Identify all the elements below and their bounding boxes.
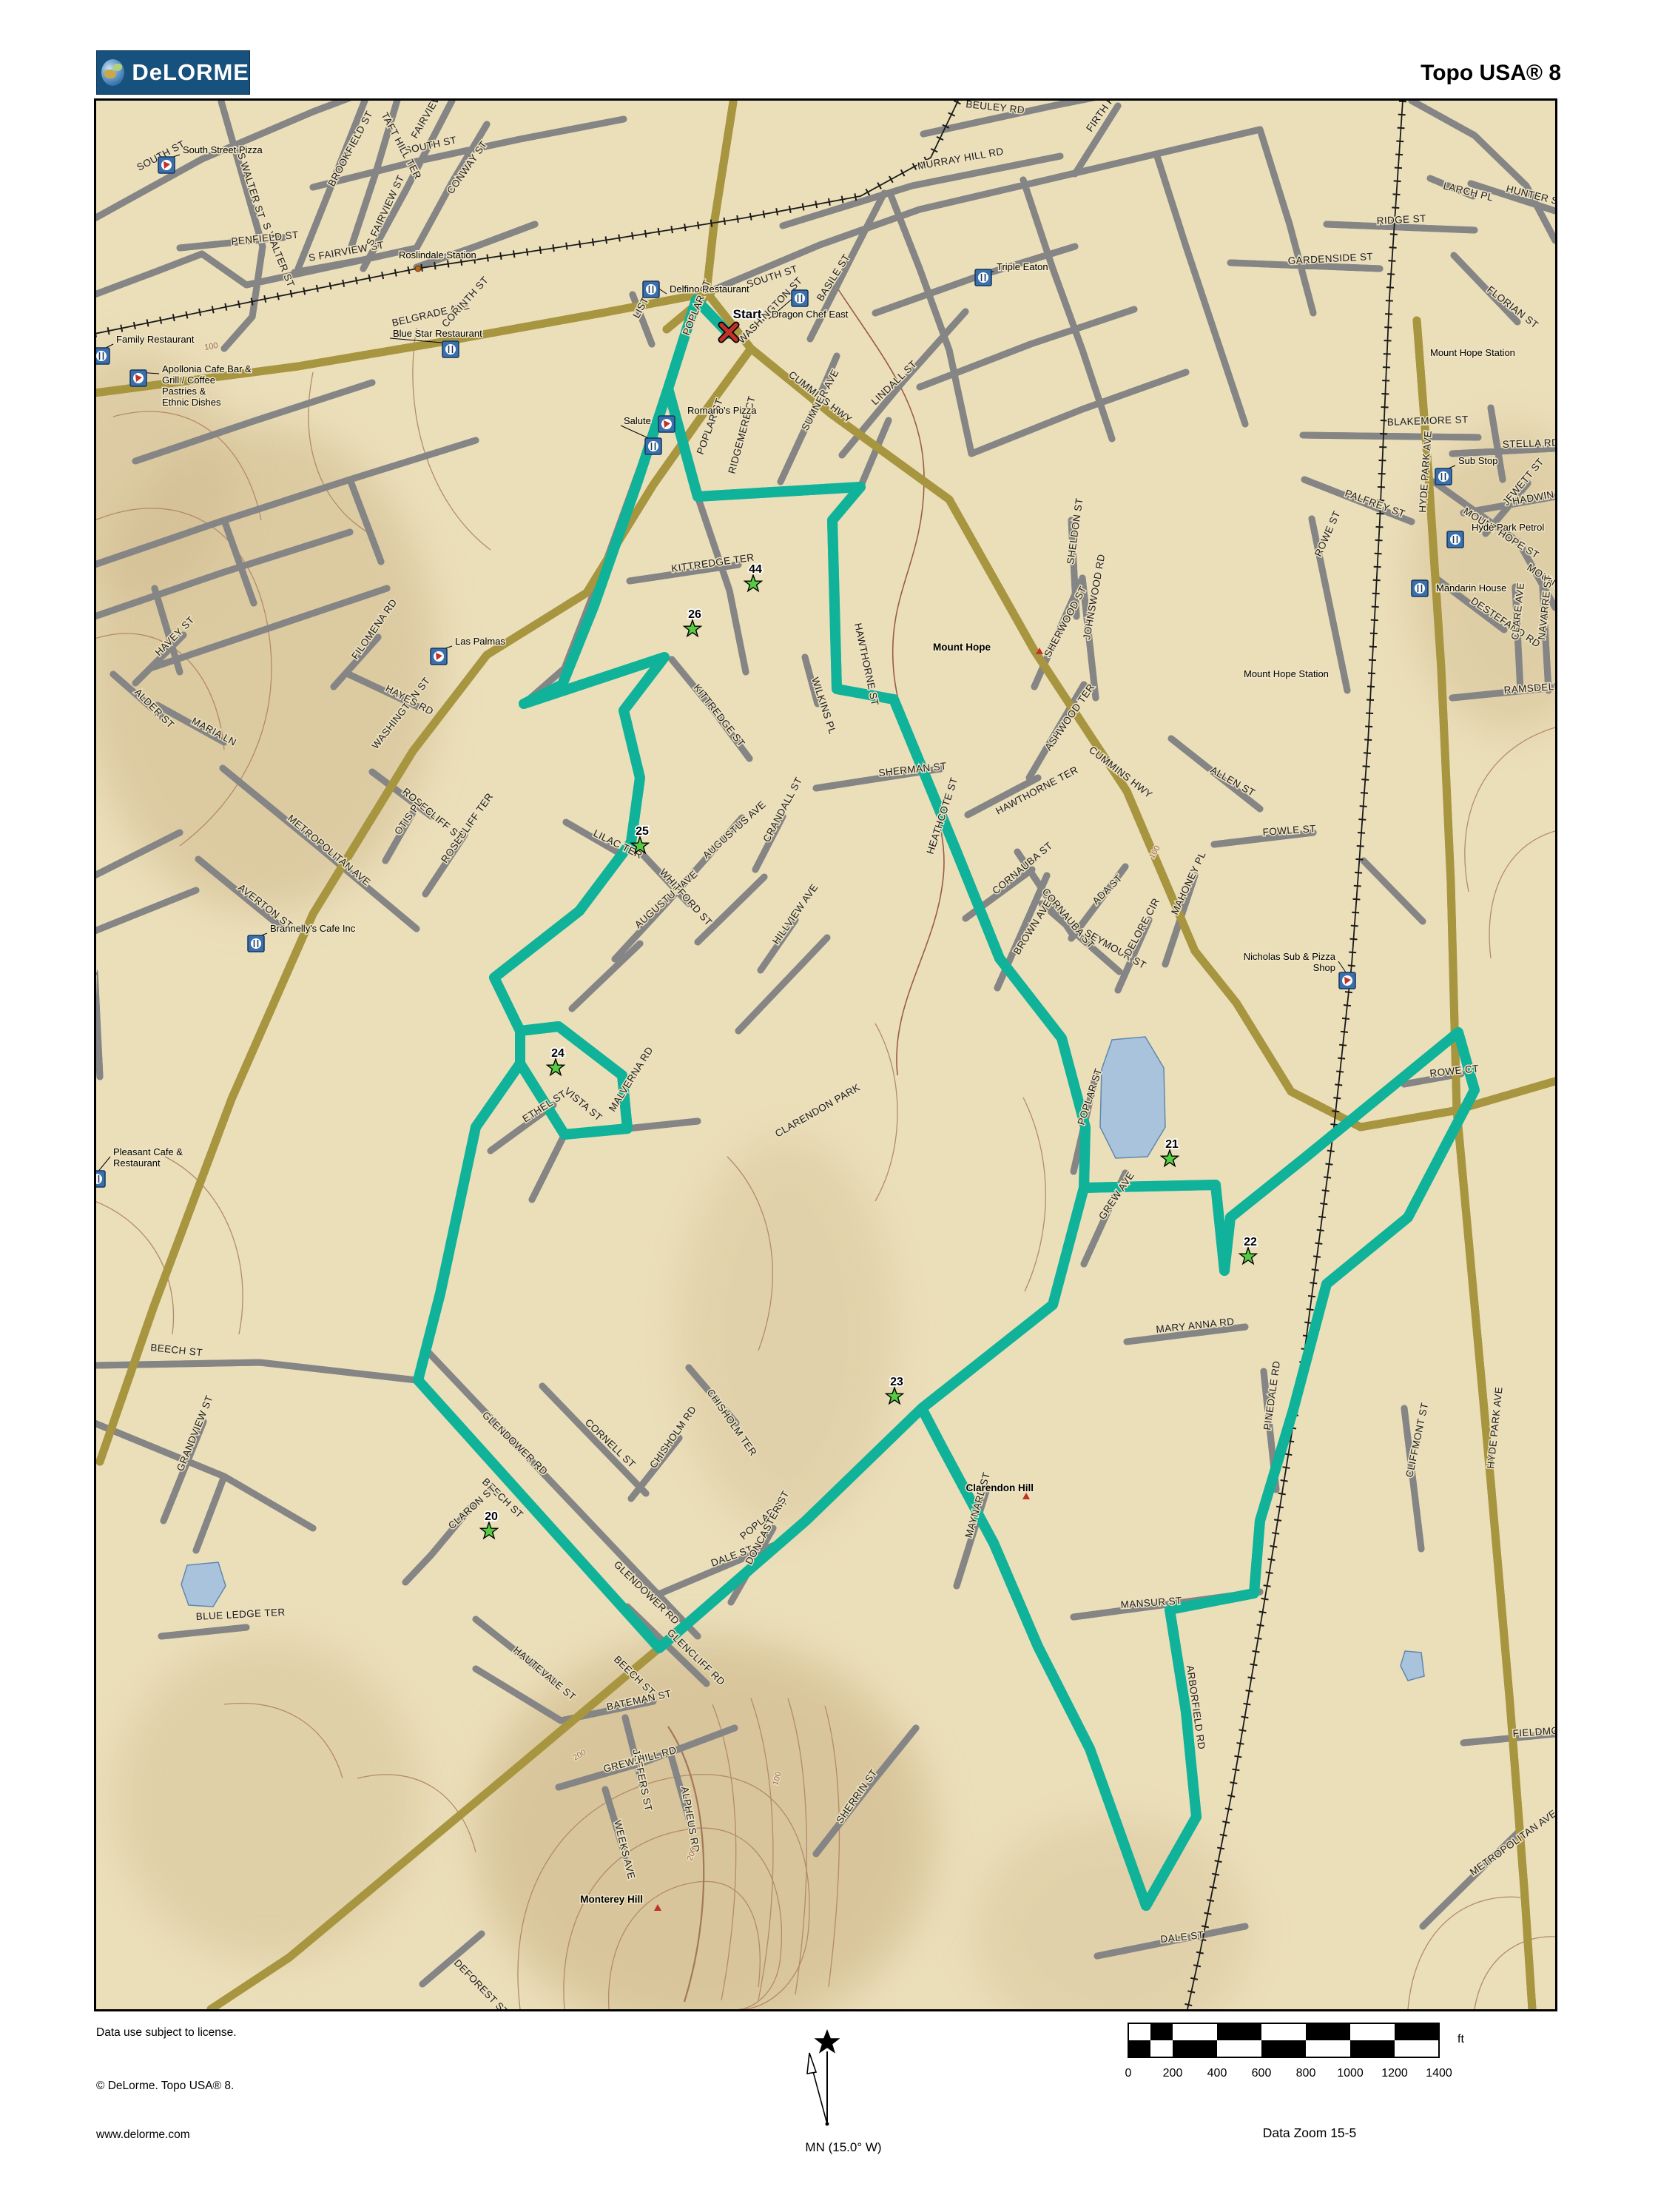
summit-triangle-icon	[1022, 1493, 1030, 1499]
street-name-label: CORNELL ST	[583, 1416, 638, 1470]
street-name-label: STELLA RD	[1503, 437, 1555, 450]
waypoint-star-icon[interactable]	[684, 620, 701, 636]
contour-elevation-label: 100	[203, 341, 218, 352]
poi-label: Restaurant	[113, 1157, 161, 1169]
street-name-label: SUMNER AVE	[799, 368, 840, 433]
poi-icon-plate	[445, 344, 456, 354]
waypoint-star-icon[interactable]	[547, 1059, 565, 1075]
website-link[interactable]: www.delorme.com	[96, 2128, 190, 2142]
license-line-1: Data use subject to license.	[96, 2026, 237, 2040]
street-name-label: SHERWOOD ST	[1042, 585, 1088, 659]
scale-tick-label: 1400	[1426, 2067, 1452, 2080]
waypoint-26[interactable]: 26	[684, 608, 701, 636]
poi-icon-plate	[251, 938, 261, 949]
poi-label: Sub Stop	[1458, 455, 1498, 466]
street-name-label: BLAKEMORE ST	[1387, 414, 1469, 428]
scale-tick-label: 1000	[1337, 2067, 1364, 2080]
waypoint-44[interactable]: 44	[745, 563, 762, 591]
street-name-label: DEFOREST ST	[452, 1957, 510, 2009]
scale-cell	[1306, 2023, 1350, 2040]
street-name-label: PALFREY ST	[1344, 488, 1406, 520]
poi-icon-plate	[96, 351, 107, 361]
poi-label: Shop	[1313, 962, 1335, 973]
poi-icon-plate	[1450, 534, 1460, 545]
street-name-label: AUGUSTUS AVE	[701, 799, 768, 861]
street-name-label: METROPOLITAN AVE	[1468, 1807, 1555, 1877]
delorme-logo: DeLORME	[96, 50, 250, 95]
street-name-label: FLORIAN ST	[1485, 284, 1540, 331]
street-name-label: CORINTH ST	[439, 275, 491, 329]
poi-label: Nicholas Sub & Pizza	[1244, 951, 1336, 962]
street-name-label: BEULEY RD	[966, 101, 1025, 115]
station: Mount Hope Station	[1430, 347, 1515, 358]
waypoint-number: 44	[749, 563, 762, 576]
app-title: Topo USA® 8	[1421, 61, 1561, 86]
station-dot-icon	[415, 266, 421, 272]
poi-label: South Street Pizza	[183, 144, 263, 155]
street-name-label: RIDGE ST	[1376, 213, 1426, 226]
scale-tick-label: 0	[1125, 2067, 1132, 2080]
scale-cell	[1350, 2040, 1395, 2057]
globe-icon	[101, 59, 124, 86]
waypoint-number: 26	[688, 608, 701, 621]
magnetic-declination-label: MN (15.0° W)	[769, 2140, 917, 2155]
poi-label: Salute	[624, 415, 651, 426]
waypoint-number: 23	[890, 1376, 903, 1388]
street-name-label: MALVERNA RD	[607, 1045, 656, 1114]
summit-label: Mount Hope	[933, 642, 991, 653]
poi-icon-plate	[646, 284, 656, 295]
street-name-label: CRANDALL ST	[761, 776, 804, 844]
scale-cell	[1217, 2023, 1261, 2040]
scale-cell	[1150, 2023, 1173, 2040]
poi-icon-plate	[795, 293, 805, 303]
poi-label: Ethnic Dishes	[162, 397, 221, 408]
poi[interactable]: Triple Eaton	[975, 261, 1048, 286]
scale-cell	[1128, 2040, 1150, 2057]
start-label: Start	[733, 307, 762, 321]
poi-label: Dragon Chef East	[772, 309, 849, 320]
logo-text: DeLORME	[132, 59, 249, 86]
waypoint-20[interactable]: 20	[481, 1510, 498, 1539]
scale-cell	[1173, 2040, 1217, 2057]
street-name-label: CHISHOLM RD	[647, 1404, 698, 1470]
poi-label: Blue Star Restaurant	[393, 328, 482, 339]
summit-label: Monterey Hill	[580, 1894, 643, 1905]
poi-icon-plate	[648, 441, 658, 451]
waypoint-star-icon[interactable]	[481, 1522, 498, 1539]
street-name-label: DELORE CIR	[1122, 896, 1162, 958]
street-name-label: GLENDOWER RD	[612, 1559, 681, 1627]
scale-tick-label: 800	[1296, 2067, 1316, 2080]
poi-label: Mandarin House	[1436, 582, 1506, 594]
station: Mount Hope Station	[1244, 668, 1329, 679]
street-name-label: BEECH ST	[150, 1342, 203, 1358]
scale-cell	[1395, 2023, 1439, 2040]
magnetic-north-arrow-icon	[807, 2053, 816, 2074]
poi[interactable]: Pleasant Cafe &Restaurant	[96, 1146, 183, 1187]
station-label: Mount Hope Station	[1244, 668, 1329, 679]
scale-tick-label: 200	[1163, 2067, 1183, 2080]
street-name-label: LINDALL ST	[869, 358, 919, 407]
data-zoom-indicator: Data Zoom 15-5	[1199, 2125, 1421, 2141]
street-name-label: SHELDON ST	[1065, 497, 1085, 565]
poi-label: Delfino Restaurant	[670, 283, 749, 295]
scale-unit-label: ft	[1458, 2033, 1464, 2045]
poi[interactable]: Nicholas Sub & PizzaShop	[1244, 951, 1355, 989]
poi-label: Apollonia Cafe Bar &	[162, 363, 252, 374]
street-name-label: HAWTHORNE TER	[994, 764, 1079, 816]
street-name-label: ASHWOOD TER	[1042, 682, 1096, 753]
waypoint-22[interactable]: 22	[1240, 1236, 1257, 1264]
waypoint-star-icon[interactable]	[745, 575, 762, 591]
map-canvas[interactable]: SOUTH STS WALTER STS WALTER STBROOKFIELD…	[94, 98, 1557, 2011]
waypoint-number: 25	[636, 825, 649, 838]
street-name-label: GREW AVE	[1096, 1170, 1136, 1222]
waypoint-24[interactable]: 24	[547, 1047, 565, 1075]
waypoint-number: 24	[551, 1047, 565, 1060]
hill-shading	[96, 350, 1555, 2009]
scale-tick-label: 400	[1207, 2067, 1227, 2080]
poi-label: Las Palmas	[455, 636, 505, 647]
license-line-2: © DeLorme. Topo USA® 8.	[96, 2080, 234, 2093]
station-label: Mount Hope Station	[1430, 347, 1515, 358]
street-name-label: ALLEN ST	[1209, 764, 1258, 799]
street-name-label: CUMMINS HWY	[1087, 744, 1154, 801]
poi-label: Hyde Park Petrol	[1472, 522, 1544, 533]
summit-label: Clarendon Hill	[966, 1482, 1034, 1493]
poi-icon-plate	[978, 272, 988, 283]
scale-tick-label: 1200	[1381, 2067, 1408, 2080]
street-name-label: VISTA ST	[562, 1086, 604, 1123]
waypoint-number: 20	[485, 1510, 498, 1523]
poi-label: Brannelly's Cafe Inc	[270, 923, 356, 934]
poi-icon-plate	[1438, 471, 1449, 482]
street-name-label: MAHONEY PL	[1169, 850, 1208, 916]
station-label: Roslindale Station	[399, 249, 476, 260]
poi-label: Romano's Pizza	[687, 405, 757, 416]
waypoint-number: 22	[1244, 1236, 1257, 1248]
poi-label: Grill / Coffee	[162, 374, 215, 386]
scale-tick-label: 600	[1252, 2067, 1272, 2080]
waypoint-star-icon[interactable]	[1240, 1248, 1257, 1264]
poi-label: Pleasant Cafe &	[113, 1146, 183, 1157]
poi-label: Pastries &	[162, 386, 206, 397]
poi-label: Family Restaurant	[116, 334, 195, 345]
poi-label: Triple Eaton	[997, 261, 1048, 272]
street-name-label: BLUE LEDGE TER	[195, 1607, 286, 1622]
street-name-label: HILLVIEW AVE	[770, 882, 820, 947]
scale-cell	[1261, 2040, 1306, 2057]
street-name-label: ADA ST	[1091, 873, 1125, 907]
street-name-label: CLARON ST	[446, 1483, 498, 1531]
waypoint-21[interactable]: 21	[1162, 1138, 1179, 1166]
station-labels: Roslindale StationMount Hope StationMoun…	[399, 249, 1515, 679]
street-name-label: CLARENDON PARK	[773, 1082, 862, 1140]
waypoint-number: 21	[1165, 1138, 1179, 1151]
street-name-label: KITTREDGE ST	[692, 682, 747, 749]
poi-icon-plate	[1415, 583, 1425, 594]
true-north-star-icon	[815, 2029, 840, 2054]
waypoint-star-icon[interactable]	[1162, 1150, 1179, 1166]
